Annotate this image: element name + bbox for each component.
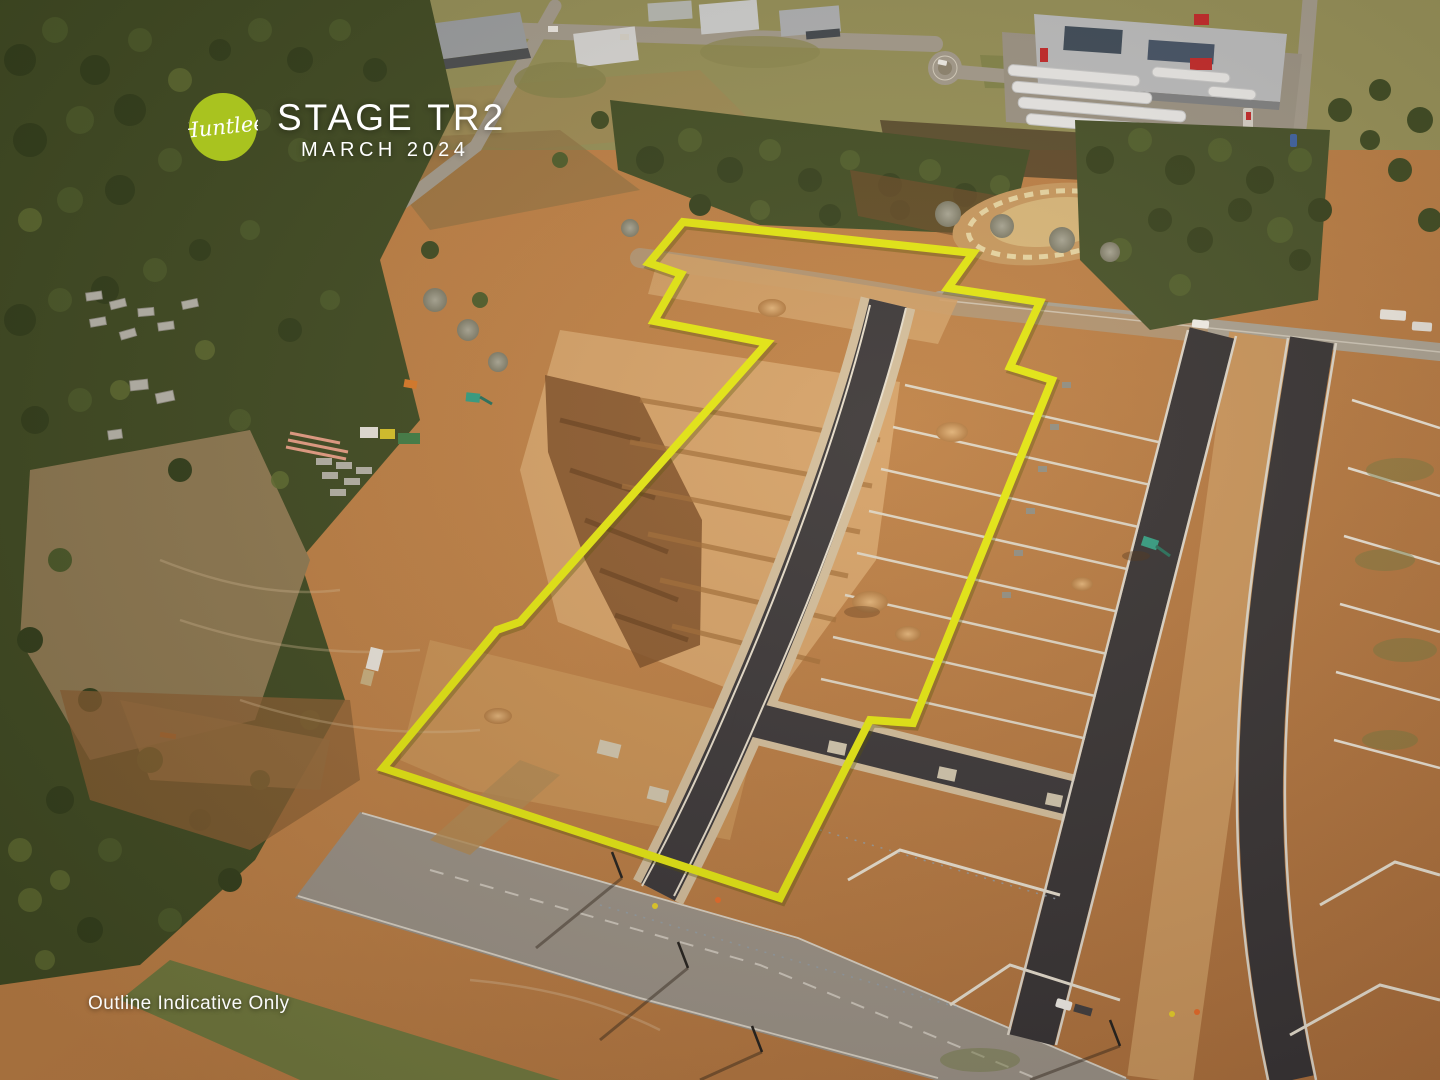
- stage-title: STAGE TR2: [277, 97, 506, 139]
- roundabout: [928, 51, 962, 85]
- shopping-centre: [1002, 14, 1302, 142]
- scene-svg: [0, 0, 1440, 1080]
- aerial-photo: Huntlee STAGE TR2 MARCH 2024 Outline Ind…: [0, 0, 1440, 1080]
- huntlee-logo: Huntlee: [188, 92, 258, 162]
- stage-date: MARCH 2024: [301, 139, 469, 162]
- disclaimer-note: Outline Indicative Only: [88, 993, 290, 1015]
